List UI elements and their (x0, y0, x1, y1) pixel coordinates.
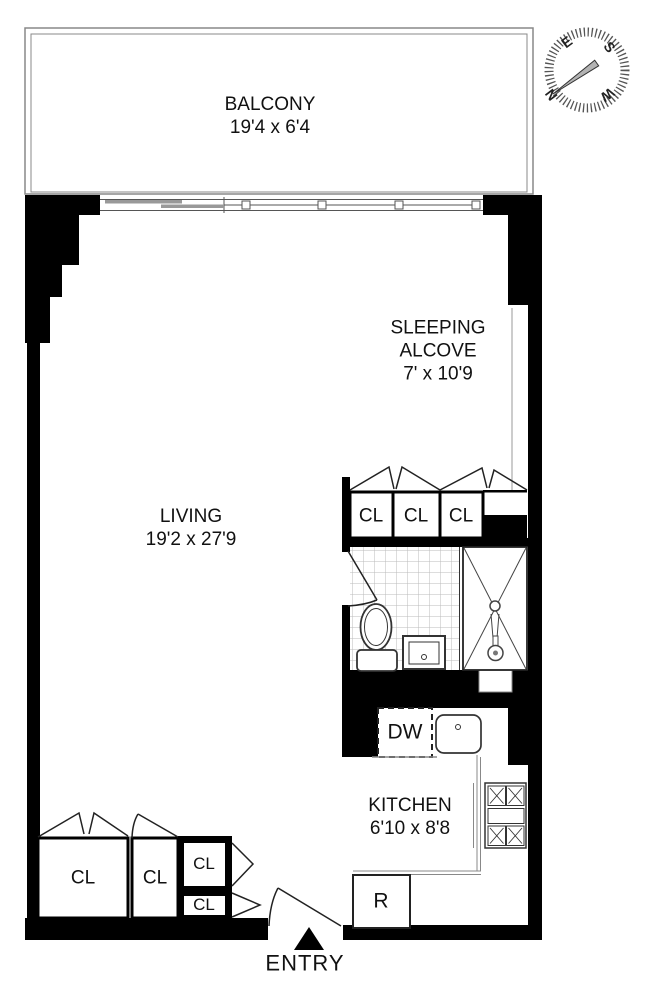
wall-left-step2 (25, 265, 62, 297)
kitchen-dims: 6'10 x 8'8 (368, 817, 451, 840)
wall-top-right (483, 195, 542, 215)
sleeping-alcove-name: SLEEPING ALCOVE (373, 317, 503, 363)
refrigerator-label: R (373, 890, 388, 913)
balcony-name: BALCONY (225, 93, 316, 116)
living-label: LIVING 19'2 x 27'9 (146, 505, 237, 551)
bathroom (348, 547, 527, 671)
balcony-label: BALCONY 19'4 x 6'4 (225, 93, 316, 139)
wall-right-column (508, 215, 542, 305)
entry-label: ENTRY (265, 952, 344, 975)
closet-label: CL (71, 867, 95, 890)
closet-label: CL (404, 505, 428, 528)
sleeping-alcove-label: SLEEPING ALCOVE 7' x 10'9 (373, 317, 503, 386)
bathroom-sink (403, 636, 445, 669)
wall-right-kitchen (508, 708, 542, 765)
slider-panel (105, 200, 182, 204)
closet-label: CL (449, 505, 473, 528)
wall-kitchen-left (342, 708, 378, 757)
wall-closet-topline (483, 490, 527, 493)
slider-panel (161, 205, 224, 209)
dishwasher-label: DW (388, 721, 423, 744)
wall-left-step3 (25, 297, 50, 343)
wall-top-left (25, 195, 100, 215)
shower (463, 547, 527, 670)
kitchen-label: KITCHEN 6'10 x 8'8 (368, 794, 451, 840)
wall-right-lower (528, 765, 542, 940)
closet-label: CL (193, 896, 215, 914)
living-name: LIVING (146, 505, 237, 528)
shower-step (479, 668, 512, 692)
toilet-tank (357, 650, 397, 671)
entry-arrow-icon (294, 927, 324, 950)
stove (485, 783, 526, 848)
wall-bottom-left (25, 918, 268, 940)
closet-label: CL (359, 505, 383, 528)
floor-plan-drawing (0, 0, 649, 1000)
living-dims: 19'2 x 27'9 (146, 528, 237, 551)
window-band (100, 196, 483, 214)
closet-label: CL (193, 855, 215, 873)
kitchen-sink (436, 715, 481, 753)
wall-left-step1 (25, 215, 79, 265)
closets-top-bifold-doors (350, 467, 527, 490)
sleeping-alcove-dims: 7' x 10'9 (373, 363, 503, 386)
kitchen-name: KITCHEN (368, 794, 451, 817)
entry-door (269, 888, 341, 926)
closet-label: CL (143, 867, 167, 890)
wall-right (528, 305, 542, 690)
balcony-dims: 19'4 x 6'4 (225, 116, 316, 139)
wall-bath-left-lower (342, 605, 350, 670)
wall-closet-right (483, 515, 527, 538)
floor-plan: BALCONY 19'4 x 6'4 SLEEPING ALCOVE 7' x … (0, 0, 649, 1000)
